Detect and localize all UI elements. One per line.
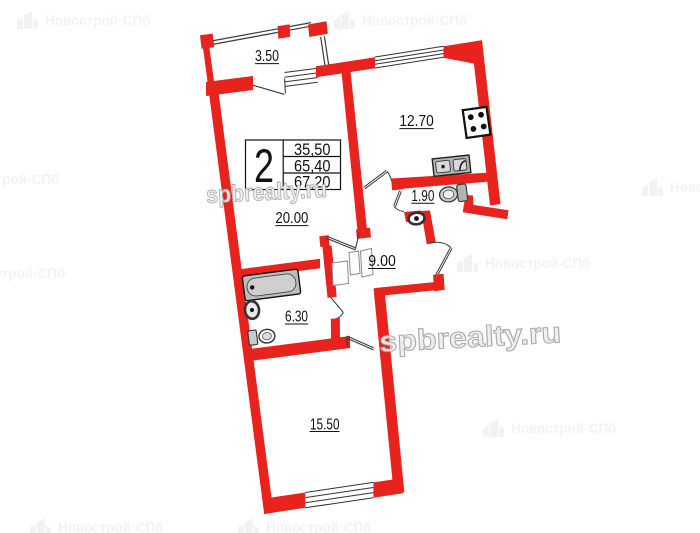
svg-text:Новострой-СПб: Новострой-СПб xyxy=(511,421,616,436)
svg-text:Новострой-СПб: Новострой-СПб xyxy=(670,180,700,195)
svg-text:20.00: 20.00 xyxy=(275,210,308,227)
svg-text:Новострой-СПб: Новострой-СПб xyxy=(45,13,150,28)
svg-text:15.50: 15.50 xyxy=(310,416,340,433)
svg-text:Новострой-СПб: Новострой-СПб xyxy=(362,13,467,28)
svg-text:1.90: 1.90 xyxy=(411,188,434,205)
svg-text:9.00: 9.00 xyxy=(368,253,396,270)
svg-text:Новострой-СПб: Новострой-СПб xyxy=(58,520,163,533)
svg-text:3.50: 3.50 xyxy=(255,48,279,65)
svg-text:Новострой-СПб: Новострой-СПб xyxy=(0,266,65,281)
svg-text:6.30: 6.30 xyxy=(285,309,308,326)
svg-text:Новострой-СПб: Новострой-СПб xyxy=(485,256,590,271)
svg-text:Новострой-СПб: Новострой-СПб xyxy=(266,520,371,533)
svg-text:65,40: 65,40 xyxy=(294,157,331,175)
svg-text:12.70: 12.70 xyxy=(399,113,433,130)
svg-text:Новострой-СПб: Новострой-СПб xyxy=(0,172,59,187)
svg-text:35,50: 35,50 xyxy=(294,141,331,159)
